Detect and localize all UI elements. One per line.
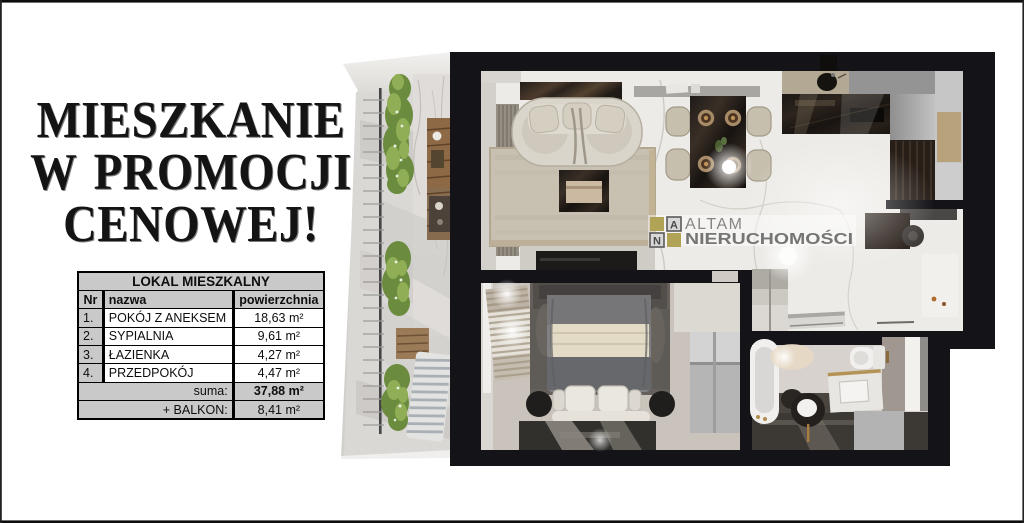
svg-text:A: A [670,220,678,232]
svg-text:N: N [653,236,661,248]
svg-text:NIERUCHOMOŚCI: NIERUCHOMOŚCI [685,229,853,248]
